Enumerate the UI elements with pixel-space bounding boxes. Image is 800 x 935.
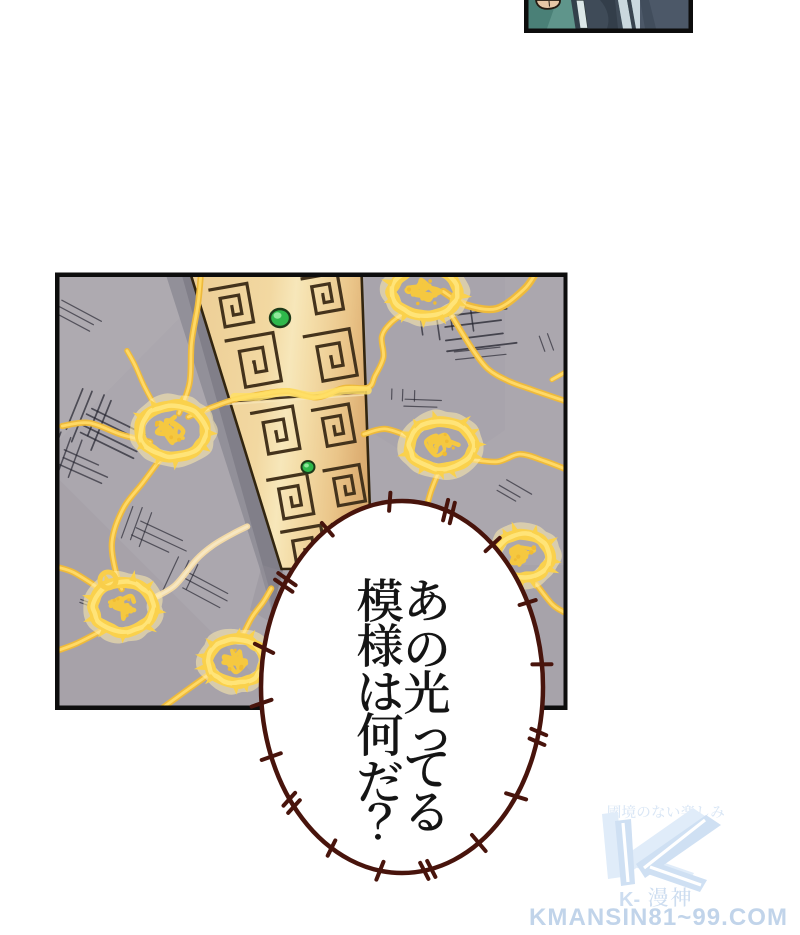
svg-text:KMANSIN81~99.COM: KMANSIN81~99.COM — [529, 904, 787, 931]
